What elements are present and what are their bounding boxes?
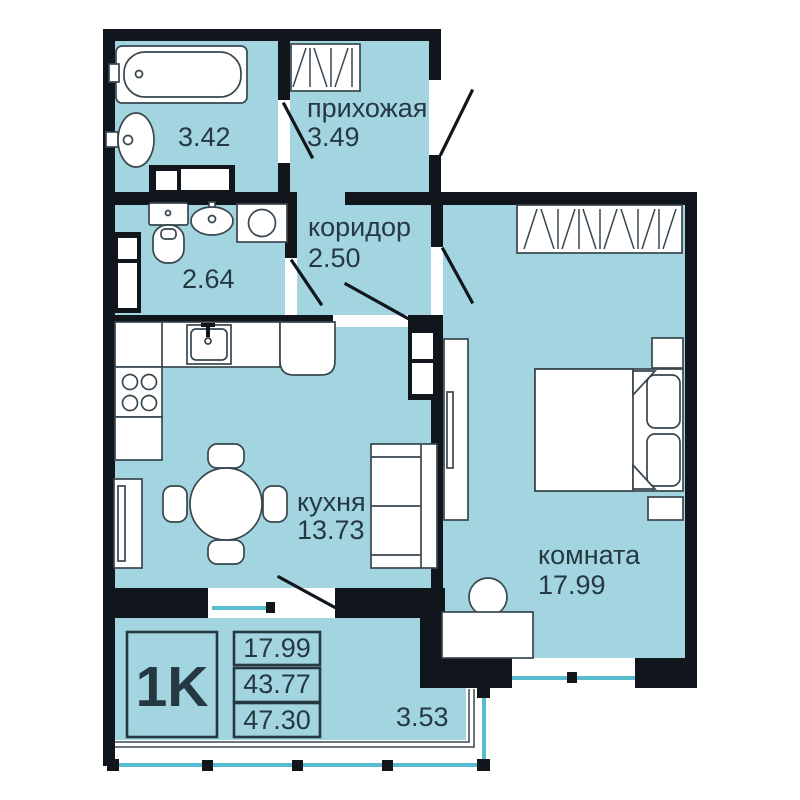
- corridor-name-label: коридор: [308, 212, 411, 242]
- kitchen-counter-left: [115, 417, 162, 460]
- desk: [442, 612, 533, 658]
- bathtub: [109, 46, 247, 103]
- hallway-area-label: 3.49: [307, 122, 360, 152]
- kitchen-radiator: [114, 479, 142, 568]
- living-room-name-label: комната: [538, 540, 641, 570]
- hallway-name-label: прихожая: [307, 93, 427, 123]
- washing-machine: [237, 204, 287, 242]
- hallway-wardrobe: [291, 44, 360, 91]
- stove: [115, 367, 162, 417]
- kitchen-name-label: кухня: [297, 487, 366, 517]
- toilet: [149, 203, 188, 263]
- bathroom-shaft-inset: [181, 169, 229, 190]
- wall-right: [685, 192, 697, 688]
- room-wardrobe: [517, 205, 682, 253]
- nightstand: [648, 497, 683, 520]
- wall-kitchen-bottom-right: [335, 588, 445, 618]
- desk-chair: [469, 578, 507, 616]
- nightstand: [652, 338, 683, 368]
- pillow: [647, 375, 680, 428]
- bathroom-area-label: 3.42: [178, 122, 231, 152]
- corridor-shaft-inset: [412, 363, 433, 394]
- apartment-area-value: 43.77: [243, 669, 311, 699]
- dining-table: [190, 468, 262, 540]
- kitchen-area-label: 13.73: [297, 515, 365, 545]
- floor-plan-svg: 1K 17.99 43.77 47.30 3.42 прихожая 3.49 …: [0, 0, 800, 800]
- toilet-area-label: 2.64: [182, 264, 235, 294]
- total-area-value: 47.30: [243, 705, 311, 735]
- wall-bathroom-bottom: [103, 192, 297, 205]
- floor-plan-page: 1K 17.99 43.77 47.30 3.42 прихожая 3.49 …: [0, 0, 800, 800]
- wall-kitchen-bottom-left: [103, 588, 208, 618]
- blanket: [535, 369, 633, 491]
- kitchen-window: [212, 602, 275, 613]
- wall-top: [103, 29, 441, 41]
- wall-room-top: [345, 192, 697, 205]
- chair: [208, 540, 244, 564]
- chair: [208, 444, 244, 468]
- kitchen-door-opening: [333, 315, 408, 327]
- room-door-opening: [431, 247, 443, 315]
- wall-room-bottom-left: [431, 658, 512, 688]
- fridge: [280, 322, 335, 375]
- balcony-area-label: 3.53: [396, 702, 449, 732]
- room-cabinet: [444, 339, 468, 520]
- toilet-shaft-inset: [118, 238, 137, 259]
- corridor-area-label: 2.50: [308, 243, 361, 273]
- wall-room-bottom-right: [635, 658, 697, 688]
- chair: [263, 486, 287, 522]
- living-room-area-label: 17.99: [538, 570, 606, 600]
- kitchen-sink: [187, 323, 231, 364]
- entrance-door-opening: [429, 80, 441, 155]
- bed: [535, 369, 683, 491]
- room-window: [512, 672, 635, 683]
- toilet-shaft-inset: [118, 263, 137, 308]
- pillow: [647, 434, 680, 486]
- kitchen-sofa: [371, 444, 437, 568]
- entrance-door-swing: [441, 91, 472, 154]
- chair: [163, 486, 187, 522]
- living-area-value: 17.99: [243, 633, 311, 663]
- type-label: 1K: [136, 655, 209, 719]
- corridor-shaft-inset: [412, 333, 433, 359]
- bathroom-shaft-inset: [156, 171, 177, 190]
